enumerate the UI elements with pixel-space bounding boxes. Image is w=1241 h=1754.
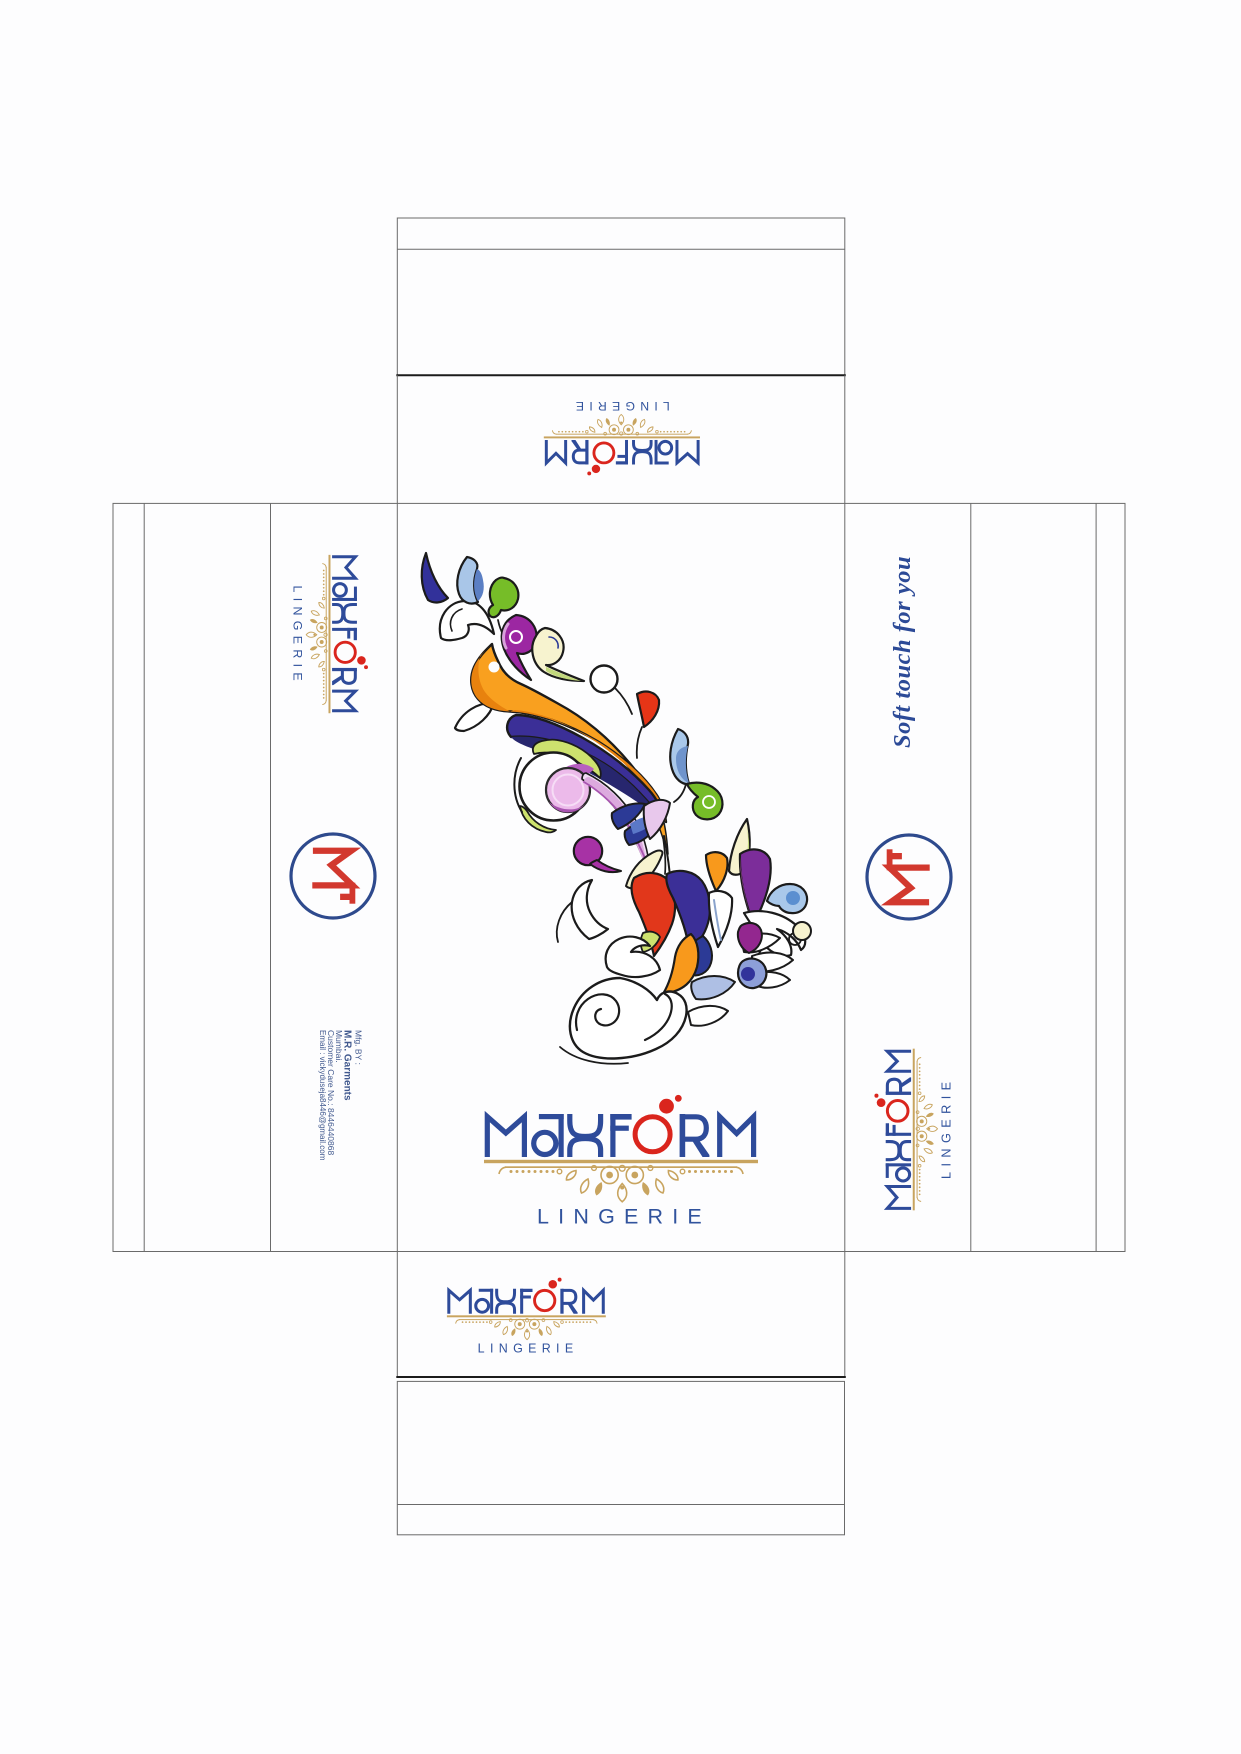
svg-text:Soft touch for you: Soft touch for you (889, 556, 916, 748)
svg-text:Mfg. BY :: Mfg. BY : (353, 1030, 363, 1065)
svg-text:Email : vickyduseja8446@gmail.: Email : vickyduseja8446@gmail.com (318, 1030, 327, 1161)
